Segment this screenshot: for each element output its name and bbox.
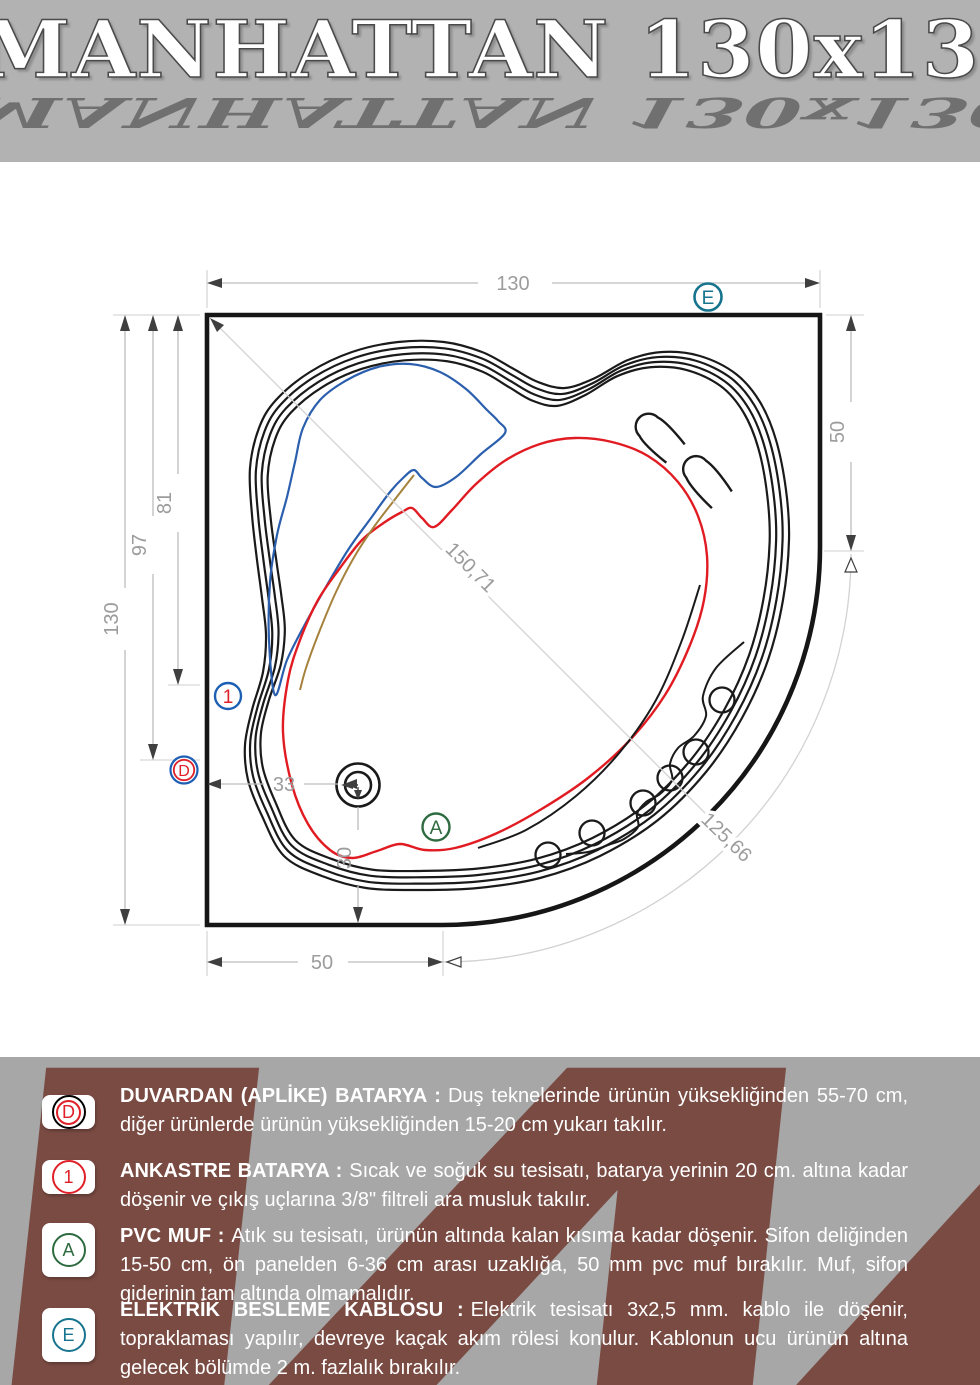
legend-symbol-plate: A <box>42 1223 95 1277</box>
legend-item-title: ELEKTRİK BESLEME KABLOSU : <box>120 1299 464 1321</box>
dim-left-mid: 97 <box>129 534 151 556</box>
legend-symbol-plate: 1 <box>42 1160 95 1194</box>
marker-d: D <box>171 757 198 784</box>
svg-text:1: 1 <box>223 687 234 708</box>
svg-text:A: A <box>430 818 443 839</box>
dim-drain-x: 33 <box>273 774 295 796</box>
svg-text:E: E <box>702 288 715 309</box>
legend-item-title: ANKASTRE BATARYA : <box>120 1160 342 1182</box>
dim-bottom-offset: 50 <box>311 952 333 974</box>
dim-left-inner: 81 <box>154 492 176 514</box>
dim-right-offset: 50 <box>827 421 849 443</box>
legend-item-title: DUVARDAN (APLİKE) BATARYA : <box>120 1085 441 1107</box>
legend-panel: W D DUVARDAN (APLİKE) BATARYA :Duş tekne… <box>0 1057 980 1385</box>
legend-symbol-plate: E <box>42 1308 95 1362</box>
legend-item: ELEKTRİK BESLEME KABLOSU :Elektrik tesis… <box>120 1296 908 1383</box>
legend-symbol-e: E <box>52 1318 86 1352</box>
legend-symbol-plate: D <box>42 1095 95 1129</box>
legend-symbol-d: D <box>56 1100 81 1125</box>
legend-item-title: PVC MUF : <box>120 1225 224 1247</box>
legend-item: ANKASTRE BATARYA :Sıcak ve soğuk su tesi… <box>120 1157 908 1215</box>
svg-text:D: D <box>178 763 190 780</box>
legend-symbol-1: 1 <box>52 1160 86 1194</box>
dim-top-width: 130 <box>496 273 529 295</box>
marker-a: A <box>423 814 450 841</box>
dim-left-total: 130 <box>101 602 123 635</box>
dim-corner-arc: 125,66 <box>697 809 756 867</box>
marker-e: E <box>695 284 722 311</box>
dim-drain-y: 30 <box>334 847 356 869</box>
marker-1: 1 <box>215 683 241 709</box>
spec-sheet-page: { "header": { "title": "MANHATTAN 130x13… <box>0 0 980 1385</box>
legend-item: DUVARDAN (APLİKE) BATARYA :Duş tekneleri… <box>120 1082 908 1140</box>
legend-symbol-a: A <box>52 1233 86 1267</box>
legend-item-body: Atık su tesisatı, ürünün altında kalan k… <box>120 1225 908 1305</box>
